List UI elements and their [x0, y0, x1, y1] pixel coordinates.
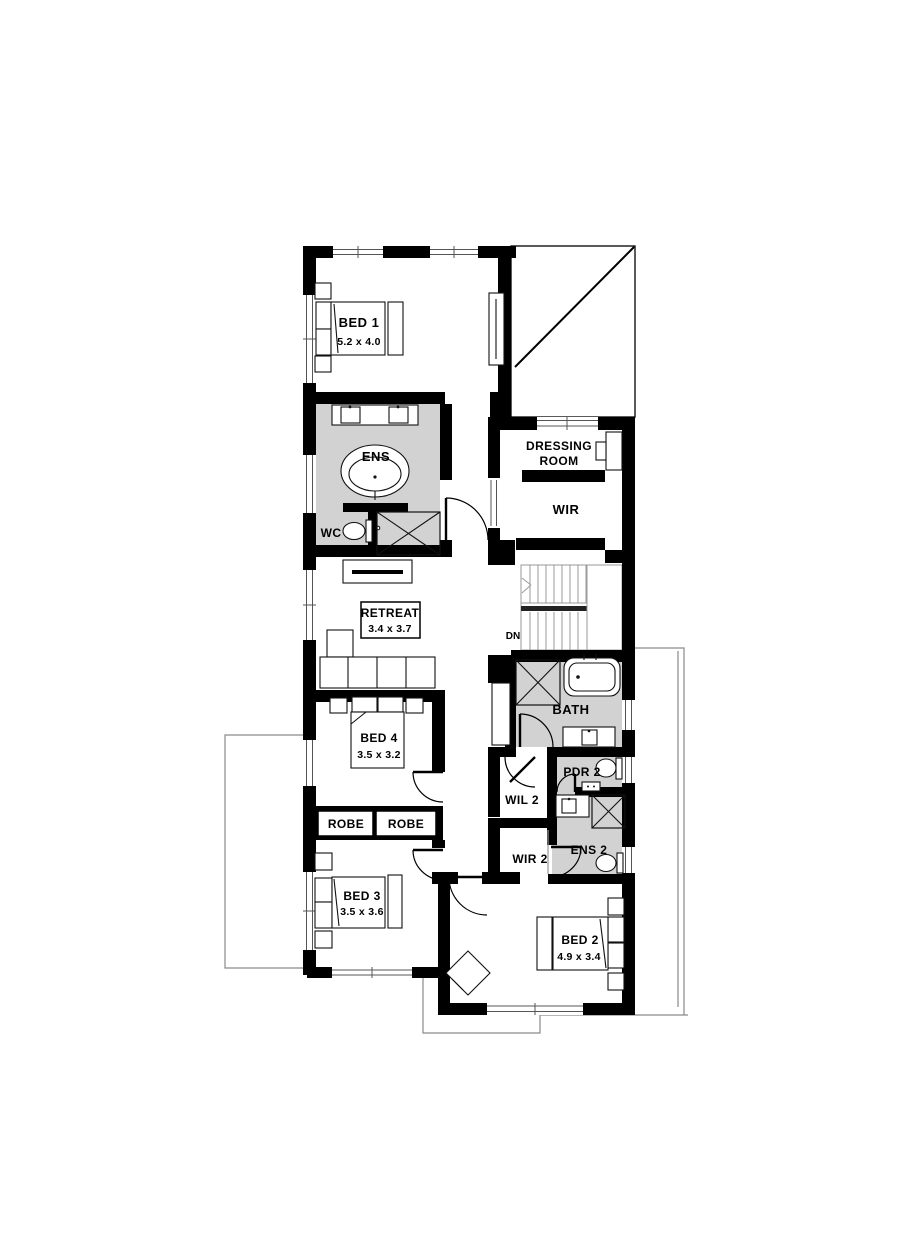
bed2-dims: 4.9 x 3.4 — [557, 951, 601, 963]
dressing-room-label-line2: ROOM — [540, 454, 579, 468]
bath-sink — [582, 730, 597, 745]
bed1-label: BED 1 — [339, 315, 380, 330]
bed2-nightstand-top — [608, 898, 624, 915]
window-bath-right — [622, 700, 635, 730]
dressing-room-label-line1: DRESSING — [526, 439, 592, 453]
window-bed1-top-1 — [333, 246, 383, 258]
door-suite-entry — [446, 498, 488, 540]
window-ens-left — [303, 455, 316, 513]
bed1-dims: 5.2 x 4.0 — [337, 336, 381, 348]
ens2-toilet-tank — [617, 853, 623, 873]
pdr2-label: PDR 2 — [563, 765, 600, 779]
dressing-dresser — [596, 432, 622, 470]
window-dressing-top — [537, 417, 598, 430]
ens-sink-1 — [341, 407, 360, 423]
bed1-dresser — [388, 302, 403, 355]
bed1-nightstand-top — [315, 283, 331, 299]
window-pdr2-right — [622, 757, 635, 783]
bed1-pillow-1 — [316, 302, 331, 329]
stair-landing-rail — [521, 606, 587, 611]
window-hall-nook — [488, 478, 500, 528]
bed3-label: BED 3 — [343, 889, 380, 903]
bed4-label: BED 4 — [360, 731, 397, 745]
pdr2-basin — [582, 782, 600, 791]
bed3-nightstand-top — [315, 853, 332, 870]
window-bed1-left — [303, 295, 316, 383]
bed4-dims: 3.5 x 3.2 — [357, 749, 401, 761]
ens2-toilet — [596, 855, 616, 872]
bed3-dresser — [388, 875, 402, 928]
stairs — [521, 565, 622, 650]
ens-label: ENS — [362, 449, 390, 464]
ens2-label: ENS 2 — [571, 843, 608, 857]
bed2-pillow-1 — [608, 917, 624, 942]
bed4-pillow-2 — [378, 697, 403, 712]
ens-sink-2 — [389, 407, 408, 423]
roof-outline-left — [225, 735, 307, 968]
stairs-dn-label: DN — [506, 631, 520, 642]
bed4-pillow-1 — [352, 697, 377, 712]
retreat-console — [343, 560, 412, 583]
ens2-sink — [562, 799, 576, 813]
bed2-dresser — [537, 917, 552, 970]
bed1-nightstand-bottom — [315, 356, 331, 372]
window-bed2-bottom — [487, 1003, 583, 1015]
wil2-label: WIL 2 — [505, 793, 539, 807]
bed4-nightstand-right — [406, 698, 423, 713]
window-bed3-bottom — [332, 967, 412, 978]
bed2-chair — [446, 951, 490, 995]
window-ens2-right — [622, 847, 635, 873]
floor-plan: BED 1 5.2 x 4.0 ENS WC DRESSING ROOM WIR… — [0, 0, 901, 1246]
bed3-pillow-2 — [315, 902, 332, 928]
wc-label: WC — [321, 526, 342, 540]
bed3-nightstand-bottom — [315, 931, 332, 948]
bed1-pillow-2 — [316, 329, 331, 355]
bed4-nightstand-left — [330, 698, 347, 713]
window-bed3-left — [303, 872, 316, 950]
hall-linen — [492, 683, 510, 745]
window-retreat-left — [303, 570, 316, 640]
void-area — [511, 246, 635, 417]
window-bed1-top-2 — [430, 246, 478, 258]
floor-plan-page: BED 1 5.2 x 4.0 ENS WC DRESSING ROOM WIR… — [0, 0, 901, 1246]
bed3-dims: 3.5 x 3.6 — [340, 906, 384, 918]
ens-toilet-tank — [366, 520, 372, 542]
bed2-pillow-2 — [608, 943, 624, 968]
retreat-dims: 3.4 x 3.7 — [368, 623, 412, 635]
bath-tub — [564, 658, 620, 696]
bath-label: BATH — [552, 702, 589, 717]
wir2-label: WIR 2 — [512, 852, 547, 866]
ens-toilet — [343, 523, 365, 540]
bed2-label: BED 2 — [561, 933, 598, 947]
pdr2-toilet-tank — [616, 758, 622, 779]
robe-left-label: ROBE — [328, 817, 364, 831]
door-bed4 — [413, 772, 443, 802]
wir-label: WIR — [553, 502, 580, 517]
robe-right-label: ROBE — [388, 817, 424, 831]
retreat-label: RETREAT — [361, 606, 420, 620]
window-bed4-left — [303, 740, 316, 786]
door-wil2 — [505, 757, 535, 787]
roof-outline-right — [635, 648, 684, 1015]
bed2-nightstand-bottom — [608, 973, 624, 990]
bed3-pillow-1 — [315, 878, 332, 902]
